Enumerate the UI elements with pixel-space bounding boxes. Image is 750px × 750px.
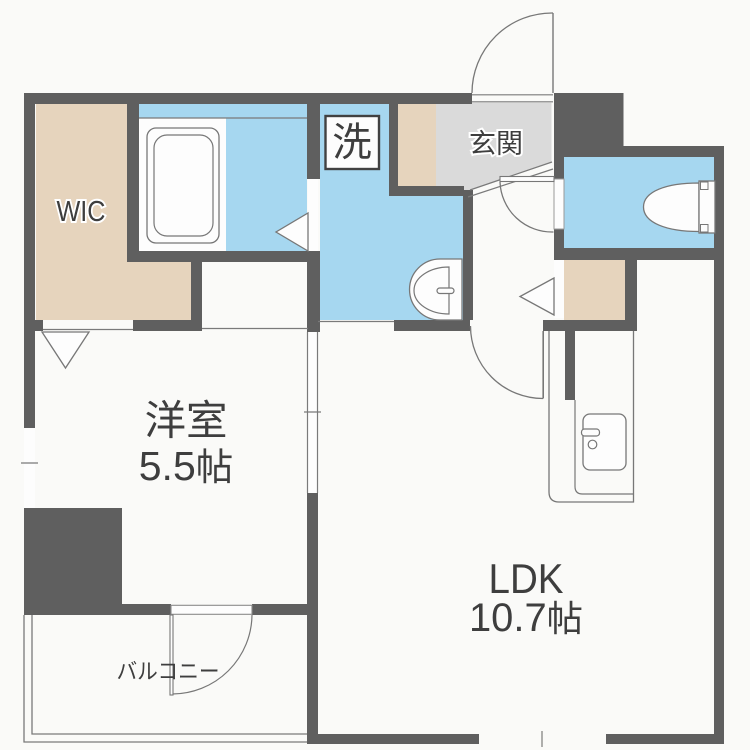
svg-text:バルコニー: バルコニー bbox=[117, 659, 220, 684]
svg-text:洋室: 洋室 bbox=[145, 398, 228, 444]
svg-text:LDK: LDK bbox=[489, 555, 564, 602]
svg-text:10.7帖: 10.7帖 bbox=[469, 596, 583, 640]
svg-text:5.5帖: 5.5帖 bbox=[139, 443, 234, 489]
svg-text:玄関: 玄関 bbox=[469, 129, 523, 159]
svg-text:洗: 洗 bbox=[332, 121, 372, 165]
svg-text:WIC: WIC bbox=[57, 196, 106, 228]
